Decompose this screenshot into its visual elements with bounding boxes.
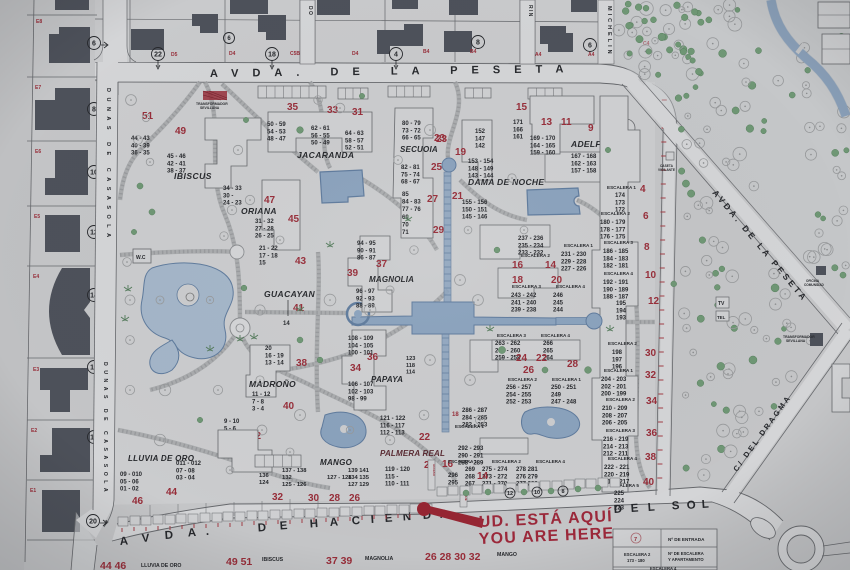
svg-text:E1: E1	[30, 488, 36, 494]
svg-text:26 28 30 32: 26 28 30 32	[425, 551, 481, 563]
svg-text:210 - 209208 - 207206 - 205: 210 - 209208 - 207206 - 205	[602, 406, 628, 427]
svg-text:80 - 7973 - 7266 - 65: 80 - 7973 - 7266 - 65	[402, 121, 421, 142]
svg-text:195194193: 195194193	[616, 301, 627, 322]
svg-text:46: 46	[132, 496, 144, 507]
svg-text:26: 26	[349, 493, 361, 504]
svg-text:171166161: 171166161	[513, 120, 524, 141]
svg-text:ESCALERA 4: ESCALERA 4	[541, 333, 570, 338]
svg-text:ESCALERA 4: ESCALERA 4	[556, 284, 585, 289]
svg-text:38: 38	[645, 452, 657, 463]
svg-text:ESCALERA 1: ESCALERA 1	[564, 243, 593, 248]
svg-text:9: 9	[588, 123, 594, 134]
svg-text:12: 12	[507, 491, 513, 497]
svg-text:ESCALERA 3: ESCALERA 3	[512, 284, 541, 289]
svg-text:204 - 203202 - 201200 - 199: 204 - 203202 - 201200 - 199	[601, 377, 627, 398]
svg-text:D: D	[257, 522, 266, 535]
svg-text:JACARANDA: JACARANDA	[297, 150, 354, 160]
svg-text:SEVILLANA: SEVILLANA	[200, 106, 220, 110]
svg-text:MANGO: MANGO	[497, 552, 517, 558]
svg-text:123118114: 123118114	[406, 356, 416, 376]
svg-text:L: L	[647, 502, 655, 514]
svg-text:ESCALERA 2: ESCALERA 2	[606, 397, 635, 402]
svg-text:ESCALERA 1: ESCALERA 1	[448, 459, 477, 464]
svg-text:82 - 8175 - 7468 - 67: 82 - 8175 - 7468 - 67	[401, 165, 420, 186]
svg-text:31 - 3227 - 2826 - 25: 31 - 3227 - 2826 - 25	[255, 219, 274, 240]
svg-text:8: 8	[644, 242, 650, 253]
svg-text:ESCALERA 2: ESCALERA 2	[608, 341, 637, 346]
svg-text:ESCALERA 4: ESCALERA 4	[650, 566, 677, 570]
svg-text:IBISCUS: IBISCUS	[174, 171, 212, 181]
svg-text:50 - 5954 - 5348 - 47: 50 - 5954 - 5348 - 47	[267, 122, 286, 143]
svg-text:15: 15	[516, 102, 528, 113]
svg-text:39: 39	[347, 268, 359, 279]
svg-text:36: 36	[646, 428, 658, 439]
svg-text:18: 18	[452, 412, 459, 418]
svg-text:121 - 122116 - 117112 - 113: 121 - 122116 - 117112 - 113	[380, 416, 406, 437]
svg-text:A: A	[119, 535, 128, 548]
svg-text:38: 38	[296, 358, 308, 369]
svg-text:E2: E2	[31, 428, 37, 434]
svg-text:8: 8	[92, 107, 96, 114]
svg-text:LLUVIA DE ORO: LLUVIA DE ORO	[141, 563, 181, 569]
svg-text:28: 28	[329, 493, 341, 504]
svg-text:25: 25	[431, 162, 443, 173]
svg-text:34: 34	[646, 396, 658, 407]
svg-text:B4: B4	[423, 49, 430, 55]
svg-text:D4: D4	[229, 51, 236, 57]
svg-text:256 - 257254 - 255252 - 253: 256 - 257254 - 255252 - 253	[506, 385, 532, 406]
svg-text:MAGNOLIA: MAGNOLIA	[365, 556, 393, 562]
svg-text:186 - 185184 - 183182 - 181: 186 - 185184 - 183182 - 181	[603, 249, 629, 270]
svg-text:225224223: 225224223	[614, 491, 625, 512]
svg-text:E: E	[630, 502, 639, 515]
svg-text:20: 20	[89, 519, 97, 526]
svg-text:29: 29	[433, 225, 445, 236]
svg-text:16: 16	[512, 260, 524, 271]
svg-text:41: 41	[293, 303, 305, 314]
svg-text:6: 6	[643, 211, 649, 222]
svg-text:62 - 6156 - 5550 - 49: 62 - 6156 - 5550 - 49	[311, 126, 330, 147]
svg-text:24: 24	[516, 353, 528, 364]
svg-text:ESCALERA 1: ESCALERA 1	[552, 377, 581, 382]
svg-text:E3: E3	[33, 367, 39, 373]
svg-text:E4: E4	[33, 274, 39, 280]
svg-text:MANGO: MANGO	[320, 458, 353, 467]
svg-text:PAPAYA: PAPAYA	[371, 375, 403, 384]
svg-text:Nº DE ENTRADA: Nº DE ENTRADA	[668, 537, 705, 542]
svg-text:D4: D4	[352, 51, 359, 57]
svg-text:E6: E6	[35, 149, 41, 155]
svg-text:ESCALERA 3: ESCALERA 3	[606, 428, 635, 433]
svg-text:22: 22	[419, 432, 431, 443]
svg-text:VIGILANTE: VIGILANTE	[658, 168, 675, 172]
svg-text:231 - 230229 - 228227 - 226: 231 - 230229 - 228227 - 226	[561, 252, 587, 273]
svg-text:31: 31	[352, 107, 364, 118]
svg-text:W.C: W.C	[136, 255, 146, 261]
svg-text:23: 23	[434, 133, 446, 144]
svg-text:DAMA DE NOCHE: DAMA DE NOCHE	[468, 177, 544, 187]
svg-text:37 39: 37 39	[326, 555, 352, 567]
svg-text:216 - 219214 - 213212 - 211: 216 - 219214 - 213212 - 211	[603, 437, 629, 458]
svg-text:B4: B4	[470, 49, 477, 55]
svg-text:D O: D O	[307, 6, 313, 15]
svg-text:49 51: 49 51	[226, 556, 252, 568]
svg-text:180 - 179178 - 177176 - 175: 180 - 179178 - 177176 - 175	[600, 220, 626, 241]
svg-text:D: D	[164, 529, 173, 542]
svg-text:10: 10	[534, 490, 540, 496]
svg-text:ESCALERA 4: ESCALERA 4	[536, 459, 565, 464]
svg-text:ACCESO: ACCESO	[432, 464, 436, 477]
svg-text:32: 32	[272, 492, 284, 503]
svg-text:19: 19	[455, 147, 467, 158]
svg-text:49: 49	[175, 126, 187, 137]
svg-text:269268267: 269268267	[465, 467, 476, 488]
svg-text:33: 33	[327, 105, 339, 116]
svg-text:7: 7	[634, 537, 637, 543]
svg-text:35: 35	[287, 102, 299, 113]
svg-text:169 - 170164 - 165159 - 160: 169 - 170164 - 165159 - 160	[530, 136, 556, 157]
svg-text:TEL: TEL	[717, 315, 726, 320]
svg-text:6: 6	[588, 43, 592, 50]
svg-text:COMUNIDAD: COMUNIDAD	[804, 283, 825, 287]
svg-text:ESCALERA 4: ESCALERA 4	[604, 271, 633, 276]
svg-text:11: 11	[561, 117, 572, 128]
svg-text:Y APARTAMENTO: Y APARTAMENTO	[668, 557, 704, 562]
svg-text:12: 12	[648, 296, 660, 307]
svg-text:13: 13	[541, 117, 553, 128]
svg-text:SEVILLANA: SEVILLANA	[786, 339, 806, 343]
svg-text:10: 10	[645, 270, 657, 281]
svg-text:ESCALERA 1: ESCALERA 1	[607, 185, 636, 190]
svg-text:26: 26	[523, 365, 535, 376]
svg-text:A: A	[187, 527, 196, 540]
svg-text:8: 8	[561, 489, 564, 495]
svg-text:94 - 9590 - 9186 - 87: 94 - 9590 - 9186 - 87	[357, 241, 376, 262]
svg-text:IBISCUS: IBISCUS	[262, 557, 284, 563]
svg-text:E5: E5	[34, 214, 40, 220]
svg-text:C5B: C5B	[290, 51, 300, 57]
svg-text:22: 22	[154, 52, 162, 59]
svg-text:TV: TV	[718, 301, 725, 307]
svg-text:30: 30	[645, 348, 657, 359]
svg-text:ORIANA: ORIANA	[241, 206, 277, 216]
svg-text:37: 37	[376, 259, 388, 270]
svg-text:18: 18	[268, 52, 276, 59]
svg-text:ESCALERA 2: ESCALERA 2	[601, 211, 630, 216]
svg-text:A4: A4	[588, 52, 595, 58]
svg-text:Nº DE ESCALERA: Nº DE ESCALERA	[668, 551, 704, 556]
svg-text:34: 34	[350, 363, 362, 374]
svg-text:47: 47	[264, 195, 276, 206]
svg-text:108 - 109104 - 105100 - 101: 108 - 109104 - 105100 - 101	[348, 336, 374, 357]
svg-text:155 - 156150 - 151145 - 146: 155 - 156150 - 151145 - 146	[462, 200, 488, 221]
svg-text:192 - 191190 - 189188 - 187: 192 - 191190 - 189188 - 187	[603, 280, 629, 301]
svg-text:DUNAS DE CASASOLA: DUNAS DE CASASOLA	[105, 88, 111, 243]
svg-text:28: 28	[567, 359, 579, 370]
svg-text:GUACAYAN: GUACAYAN	[264, 289, 316, 299]
svg-text:43: 43	[295, 256, 307, 267]
svg-text:22: 22	[536, 353, 548, 364]
svg-text:51: 51	[142, 111, 154, 122]
svg-text:ESCALERA 2: ESCALERA 2	[521, 253, 550, 258]
svg-text:SECUOIA: SECUOIA	[400, 145, 438, 154]
svg-text:MAGNOLIA: MAGNOLIA	[369, 275, 414, 284]
svg-text:DUNAS DE CASASOLA: DUNAS DE CASASOLA	[102, 362, 108, 496]
svg-text:4: 4	[394, 52, 398, 59]
svg-text:4: 4	[640, 184, 646, 195]
svg-text:243 - 242241 - 240239 - 238: 243 - 242241 - 240239 - 238	[511, 293, 537, 314]
svg-text:139 141134 135127 129: 139 141134 135127 129	[348, 468, 370, 488]
svg-text:ESCALERA 3: ESCALERA 3	[604, 240, 633, 245]
svg-text:14: 14	[477, 471, 489, 482]
svg-text:14: 14	[545, 260, 557, 271]
svg-text:ESCALERA 2: ESCALERA 2	[624, 552, 651, 557]
svg-text:44 46: 44 46	[100, 560, 126, 570]
svg-text:27: 27	[427, 194, 439, 205]
svg-text:A4: A4	[535, 52, 542, 58]
svg-text:D5: D5	[171, 52, 178, 58]
svg-text:40: 40	[643, 477, 655, 488]
svg-text:ESCALERA 4: ESCALERA 4	[608, 456, 637, 461]
svg-text:8: 8	[476, 40, 480, 47]
svg-text:PALMERA REAL: PALMERA REAL	[380, 449, 445, 458]
svg-text:173 - 180: 173 - 180	[627, 558, 645, 563]
svg-text:64 - 6358 - 5752 - 51: 64 - 6358 - 5752 - 51	[345, 131, 364, 152]
svg-text:ESCALERA 2: ESCALERA 2	[492, 459, 521, 464]
svg-text:A: A	[329, 516, 338, 529]
svg-text:L: L	[701, 499, 709, 511]
svg-text:40: 40	[283, 401, 295, 412]
svg-text:R I N: R I N	[527, 5, 533, 17]
svg-text:246245244: 246245244	[553, 293, 564, 314]
svg-text:E: E	[279, 520, 288, 533]
svg-text:E8: E8	[36, 19, 42, 25]
svg-text:O: O	[686, 499, 696, 512]
svg-text:167 - 168162 - 163157 - 158: 167 - 168162 - 163157 - 158	[571, 154, 597, 175]
svg-text:45: 45	[288, 214, 300, 225]
svg-text:6: 6	[92, 41, 96, 48]
svg-text:32: 32	[645, 370, 657, 381]
svg-text:ESCALERA 3: ESCALERA 3	[497, 333, 526, 338]
svg-text:14: 14	[283, 321, 290, 327]
svg-text:136124: 136124	[259, 473, 269, 486]
svg-text:MICHELIN: MICHELIN	[606, 6, 612, 57]
svg-text:V: V	[141, 532, 150, 545]
svg-text:152147142: 152147142	[475, 129, 486, 150]
svg-text:S: S	[671, 500, 680, 513]
svg-text:30: 30	[308, 493, 320, 504]
svg-text:E7: E7	[35, 85, 41, 91]
svg-text:ESCALERA 2: ESCALERA 2	[508, 377, 537, 382]
svg-text:44: 44	[166, 487, 178, 498]
svg-text:C: C	[351, 515, 360, 528]
svg-text:ESCALERA 1: ESCALERA 1	[604, 368, 633, 373]
